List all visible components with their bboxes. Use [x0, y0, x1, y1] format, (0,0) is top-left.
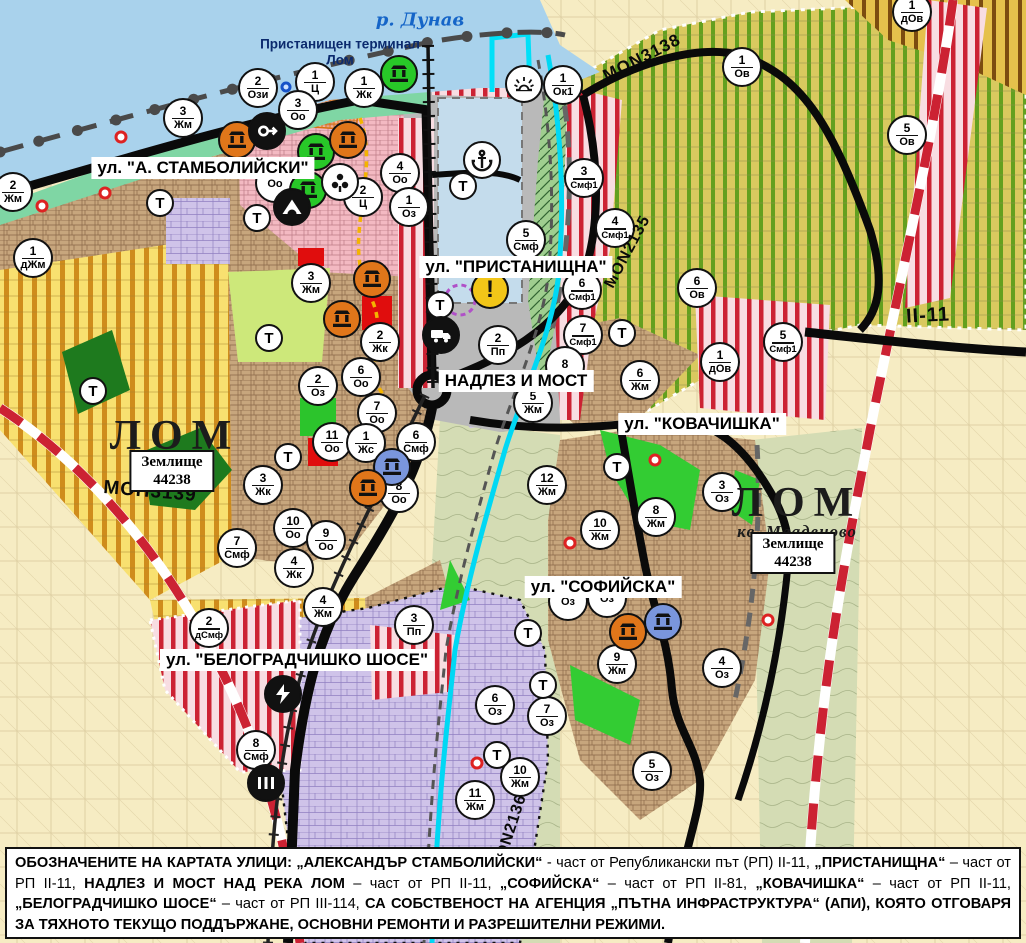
red-dot-marker — [649, 454, 662, 467]
zone-circle-4-Жк: 4Жк — [274, 548, 314, 588]
zone-circle-3-Пп: 3Пп — [394, 605, 434, 645]
note-segment: „СОФИЙСКА“ — [500, 876, 600, 892]
zone-circle-4-Жм: 4Жм — [303, 587, 343, 627]
street-label-kovachishka: ул. "КОВАЧИШКА" — [618, 413, 786, 435]
trefoil-icon — [321, 163, 359, 201]
zone-circle-3-Смф1: 3Смф1 — [564, 158, 604, 198]
zone-circle-2-дСмф: 2дСмф — [189, 608, 229, 648]
monument-icon — [609, 613, 647, 651]
transport-circle: Т — [603, 453, 631, 481]
note-segment: - част от Републикански път (РП) II-11, — [542, 855, 814, 871]
zone-circle-6-Оо: 6Оо — [341, 357, 381, 397]
monument-icon — [353, 260, 391, 298]
zone-circle-1-Ок1: 1Ок1 — [543, 65, 583, 105]
zone-circle-3-Жм: 3Жм — [291, 263, 331, 303]
map-note: ОБОЗНАЧЕНИТЕ НА КАРТАТА УЛИЦИ: „АЛЕКСАНД… — [5, 847, 1021, 939]
zone-circle-10-Жм: 10Жм — [580, 510, 620, 550]
zone-circle-6-Ов: 6Ов — [677, 268, 717, 308]
street-label-belogradchishko: ул. "БЕЛОГРАДЧИШКО ШОСЕ" — [160, 649, 434, 671]
lightning-icon — [264, 675, 302, 713]
zone-circle-8-Жм: 8Жм — [636, 497, 676, 537]
port-terminal-label: Пристанищен терминал Лом — [260, 36, 420, 67]
zone-circle-4-Оз: 4Оз — [702, 648, 742, 688]
note-segment: – част от РП II-81, — [599, 876, 755, 892]
note-segment: – част от РП II-11, — [864, 876, 1011, 892]
street-label-nadlez-most: НАДЛЕЗ И МОСТ — [439, 370, 594, 392]
zone-circle-11-Жм: 11Жм — [455, 780, 495, 820]
red-dot-marker — [115, 131, 128, 144]
zone-circle-7-Оз: 7Оз — [527, 696, 567, 736]
road-label-ii-11: II-11 — [905, 303, 950, 328]
transport-circle: Т — [483, 741, 511, 769]
land-box-lom-main: Землище44238 — [129, 450, 214, 492]
zone-circle-1-дОв: 1дОв — [700, 342, 740, 382]
zone-lilac-small — [166, 198, 230, 264]
zone-circle-6-Жм: 6Жм — [620, 360, 660, 400]
monument-icon — [323, 300, 361, 338]
zone-circle-5-Ов: 5Ов — [887, 115, 927, 155]
land-box-lom-mladenovo: Землище44238 — [750, 532, 835, 574]
zone-circle-2-Оз: 2Оз — [298, 366, 338, 406]
monument-icon — [644, 603, 682, 641]
zone-circle-3-Жк: 3Жк — [243, 465, 283, 505]
truck-icon — [422, 316, 460, 354]
red-dot-marker — [99, 187, 112, 200]
transport-circle: Т — [608, 319, 636, 347]
transport-circle: Т — [426, 291, 454, 319]
zone-circle-9-Оо: 9Оо — [306, 520, 346, 560]
zone-circle-2-Пп: 2Пп — [478, 325, 518, 365]
red-dot-marker — [762, 614, 775, 627]
transport-circle: Т — [243, 204, 271, 232]
zone-circle-12-Жм: 12Жм — [527, 465, 567, 505]
zone-circle-2-Ози: 2Ози — [238, 68, 278, 108]
note-segment: „ПРИСТАНИЩНА“ — [814, 855, 945, 871]
note-segment: „КОВАЧИШКА“ — [755, 876, 864, 892]
river-label: р. Дунав — [376, 10, 465, 31]
cave-icon — [273, 188, 311, 226]
red-dot-marker — [471, 757, 484, 770]
street-label-pristanishtna: ул. "ПРИСТАНИЩНА" — [419, 256, 612, 278]
monument-icon — [329, 121, 367, 159]
zone-circle-1-Ов: 1Ов — [722, 47, 762, 87]
red-dot-marker — [36, 200, 49, 213]
sun-icon — [505, 65, 543, 103]
red-dot-marker — [564, 537, 577, 550]
museum-key-icon — [248, 112, 286, 150]
note-segment: ОБОЗНАЧЕНИТЕ НА КАРТАТА УЛИЦИ: „АЛЕКСАНД… — [15, 855, 542, 871]
zone-circle-3-Жм: 3Жм — [163, 98, 203, 138]
street-label-stamboliyski: ул. "А. СТАМБОЛИЙСКИ" — [91, 157, 314, 179]
zone-circle-1-Оз: 1Оз — [389, 187, 429, 227]
transport-circle: Т — [514, 619, 542, 647]
zone-circle-5-Смф: 5Смф — [506, 220, 546, 260]
transport-circle: Т — [274, 443, 302, 471]
transport-circle: Т — [146, 189, 174, 217]
zone-circle-2-Жк: 2Жк — [360, 322, 400, 362]
zone-circle-5-Смф1: 5Смф1 — [763, 322, 803, 362]
monument-icon — [349, 469, 387, 507]
street-label-sofiyska: ул. "СОФИЙСКА" — [525, 576, 682, 598]
note-segment: – част от РП III-114, — [217, 896, 365, 912]
zoning-map: р. Дунав Пристанищен терминал Лом 2Ози1Ц… — [0, 0, 1026, 943]
transport-circle: Т — [255, 324, 283, 352]
zone-circle-1-Жк: 1Жк — [344, 68, 384, 108]
note-segment: „БЕЛОГРАДЧИШКО ШОСЕ“ — [15, 896, 217, 912]
rail-crossing-icon — [247, 764, 285, 802]
transport-circle: Т — [79, 377, 107, 405]
note-segment: НАДЛЕЗ И МОСТ НАД РЕКА ЛОМ — [84, 876, 345, 892]
note-segment: – част от РП II-11, — [345, 876, 500, 892]
zone-circle-5-Оз: 5Оз — [632, 751, 672, 791]
transport-circle: Т — [529, 671, 557, 699]
zone-circle-1-дЖм: 1дЖм — [13, 238, 53, 278]
anchor-icon — [463, 141, 501, 179]
zone-circle-7-Смф: 7Смф — [217, 528, 257, 568]
zone-circle-6-Оз: 6Оз — [475, 685, 515, 725]
